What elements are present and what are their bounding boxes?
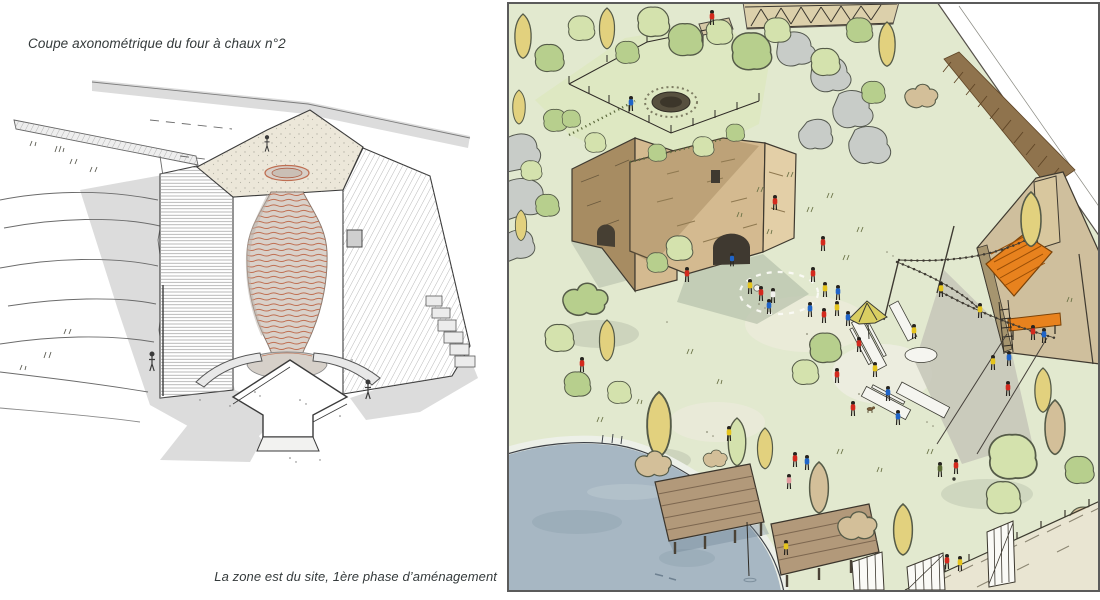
kiln-west-arch [597,225,615,248]
kiln-flue [247,192,327,370]
kiln-right-wall [343,148,475,394]
figure-caption-kiln-section: Coupe axonométrique du four à chaux n°2 [28,36,286,51]
site-aerial-illustration [507,2,1100,592]
kiln-top-platform [197,110,363,197]
kiln-section-illustration [0,60,485,475]
figure-caption-site-view: La zone est du site, 1ère phase d’aménag… [0,569,497,584]
flue-door-block [347,230,362,247]
kiln-east-window [711,170,720,183]
page-background: Coupe axonométrique du four à chaux n°2 [0,0,1100,600]
round-table [905,348,937,363]
ball [952,477,955,480]
